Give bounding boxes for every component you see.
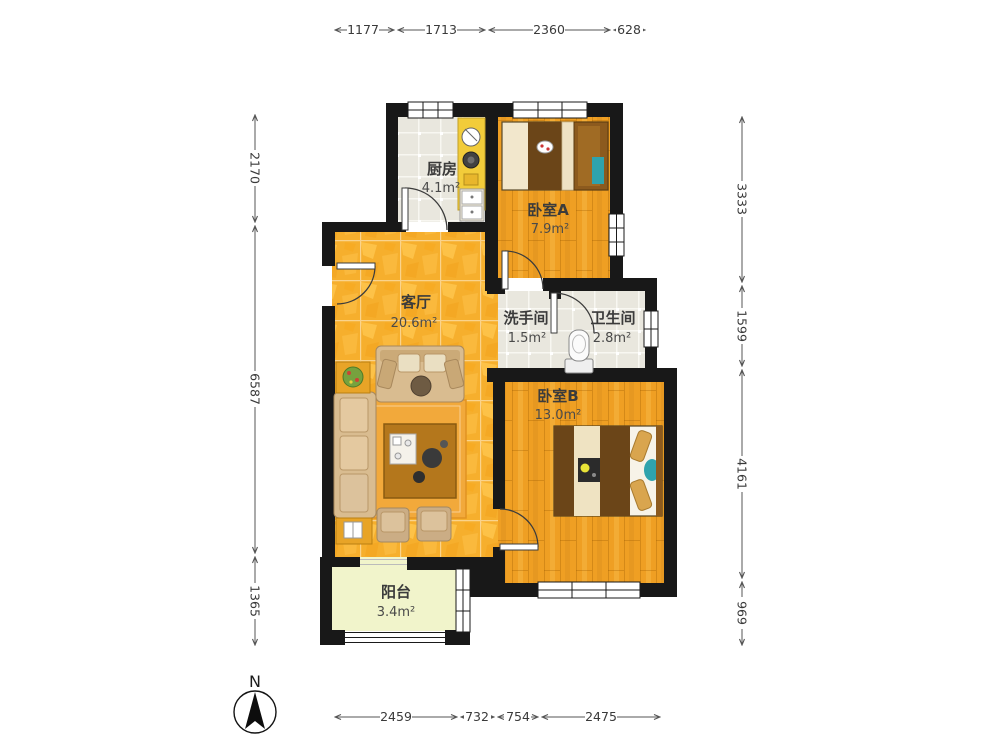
bedroom-b-window xyxy=(538,582,640,598)
kitchen-window xyxy=(408,102,453,118)
dim-label: 1177 xyxy=(347,22,379,37)
bed-b-headboard xyxy=(656,426,662,516)
balcony-railing xyxy=(345,631,445,644)
dim-label: 969 xyxy=(735,601,750,625)
wall xyxy=(470,557,505,597)
bedroom-a-bed xyxy=(502,122,608,190)
bedroom-b-label: 卧室B xyxy=(537,387,578,405)
wall xyxy=(448,222,485,232)
dim-label: 2475 xyxy=(585,709,617,724)
dim-label: 1599 xyxy=(735,310,750,342)
balcony-label: 阳台 xyxy=(381,583,411,601)
kitchen-area: 4.1m² xyxy=(422,181,461,196)
kitchen-sink-icon xyxy=(462,128,480,146)
kitchen-label: 厨房 xyxy=(427,160,457,178)
teapot-icon xyxy=(422,448,442,468)
living-room-furniture xyxy=(334,346,466,544)
dim-label: 2170 xyxy=(248,152,263,184)
wall xyxy=(407,557,470,570)
dim-label: 2459 xyxy=(380,709,412,724)
washroom-area: 1.5m² xyxy=(508,331,547,346)
dim-label: 2360 xyxy=(533,22,565,37)
balcony-area: 3.4m² xyxy=(377,605,416,620)
north-compass: N xyxy=(234,672,276,733)
toilet-icon xyxy=(565,330,593,373)
bed-a-tray-icon xyxy=(537,141,553,153)
bedroom-a-area: 7.9m² xyxy=(531,222,570,237)
dim-label: 1365 xyxy=(248,585,263,617)
floorplan-canvas: 厨房 4.1m² 卧室A 7.9m² 客厅 20.6m² 洗手间 1.5m² 卫… xyxy=(0,0,1000,750)
dim-label: 732 xyxy=(465,709,489,724)
washroom-label: 洗手间 xyxy=(503,309,548,327)
dim-label: 1713 xyxy=(425,22,457,37)
bed-a-teal-pillow xyxy=(592,157,604,184)
dim-label: 6587 xyxy=(248,373,263,405)
bathroom-label: 卫生间 xyxy=(590,309,635,327)
wall xyxy=(320,630,345,645)
dim-label: 3333 xyxy=(735,183,750,215)
plant-icon xyxy=(343,367,363,387)
wall xyxy=(386,103,398,232)
living-room-label: 客厅 xyxy=(400,293,431,311)
bedroom-b-bed xyxy=(554,426,662,516)
wall xyxy=(332,557,360,567)
bathroom-window xyxy=(644,311,658,347)
bedroom-b-area: 13.0m² xyxy=(535,408,582,423)
book-side-table xyxy=(336,518,372,544)
wall xyxy=(322,306,335,567)
wall xyxy=(322,232,335,266)
balcony-side-window xyxy=(456,569,470,632)
dim-label: 628 xyxy=(617,22,641,37)
north-label: N xyxy=(249,672,261,691)
wall xyxy=(322,222,398,232)
sofa-left xyxy=(334,392,376,518)
coffee-table xyxy=(384,424,456,498)
floorplan-svg: 厨房 4.1m² 卧室A 7.9m² 客厅 20.6m² 洗手间 1.5m² 卫… xyxy=(0,0,1000,750)
wall xyxy=(543,278,657,291)
bathroom-area: 2.8m² xyxy=(593,331,632,346)
dim-label: 754 xyxy=(506,709,530,724)
sofa-top xyxy=(376,346,464,402)
wall xyxy=(493,382,505,509)
dim-label: 4161 xyxy=(735,458,750,490)
kitchen-counter xyxy=(458,118,485,221)
cutting-board-icon xyxy=(464,174,478,185)
living-room-area: 20.6m² xyxy=(391,316,438,331)
bedroom-a-top-window xyxy=(513,102,587,118)
wall xyxy=(485,103,498,291)
bedroom-a-side-window xyxy=(609,214,624,256)
wall xyxy=(640,583,677,597)
kitchen-cabinet-icon xyxy=(460,189,484,221)
bedroom-a-label: 卧室A xyxy=(527,201,569,219)
wall xyxy=(610,103,623,291)
wall xyxy=(664,368,677,597)
plant-side-table xyxy=(336,362,370,393)
